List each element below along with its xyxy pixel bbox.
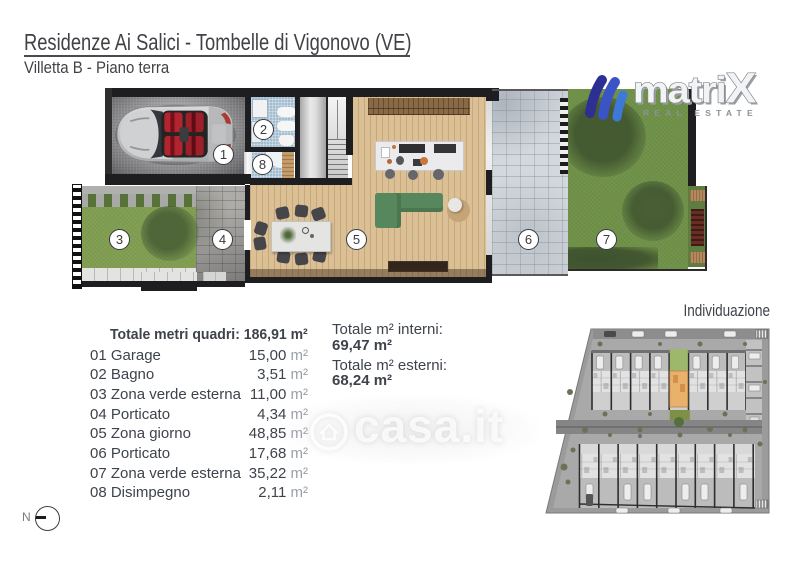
svg-text:REAL ESTATE: REAL ESTATE: [643, 108, 758, 118]
svg-text:matriX: matriX: [633, 65, 757, 112]
